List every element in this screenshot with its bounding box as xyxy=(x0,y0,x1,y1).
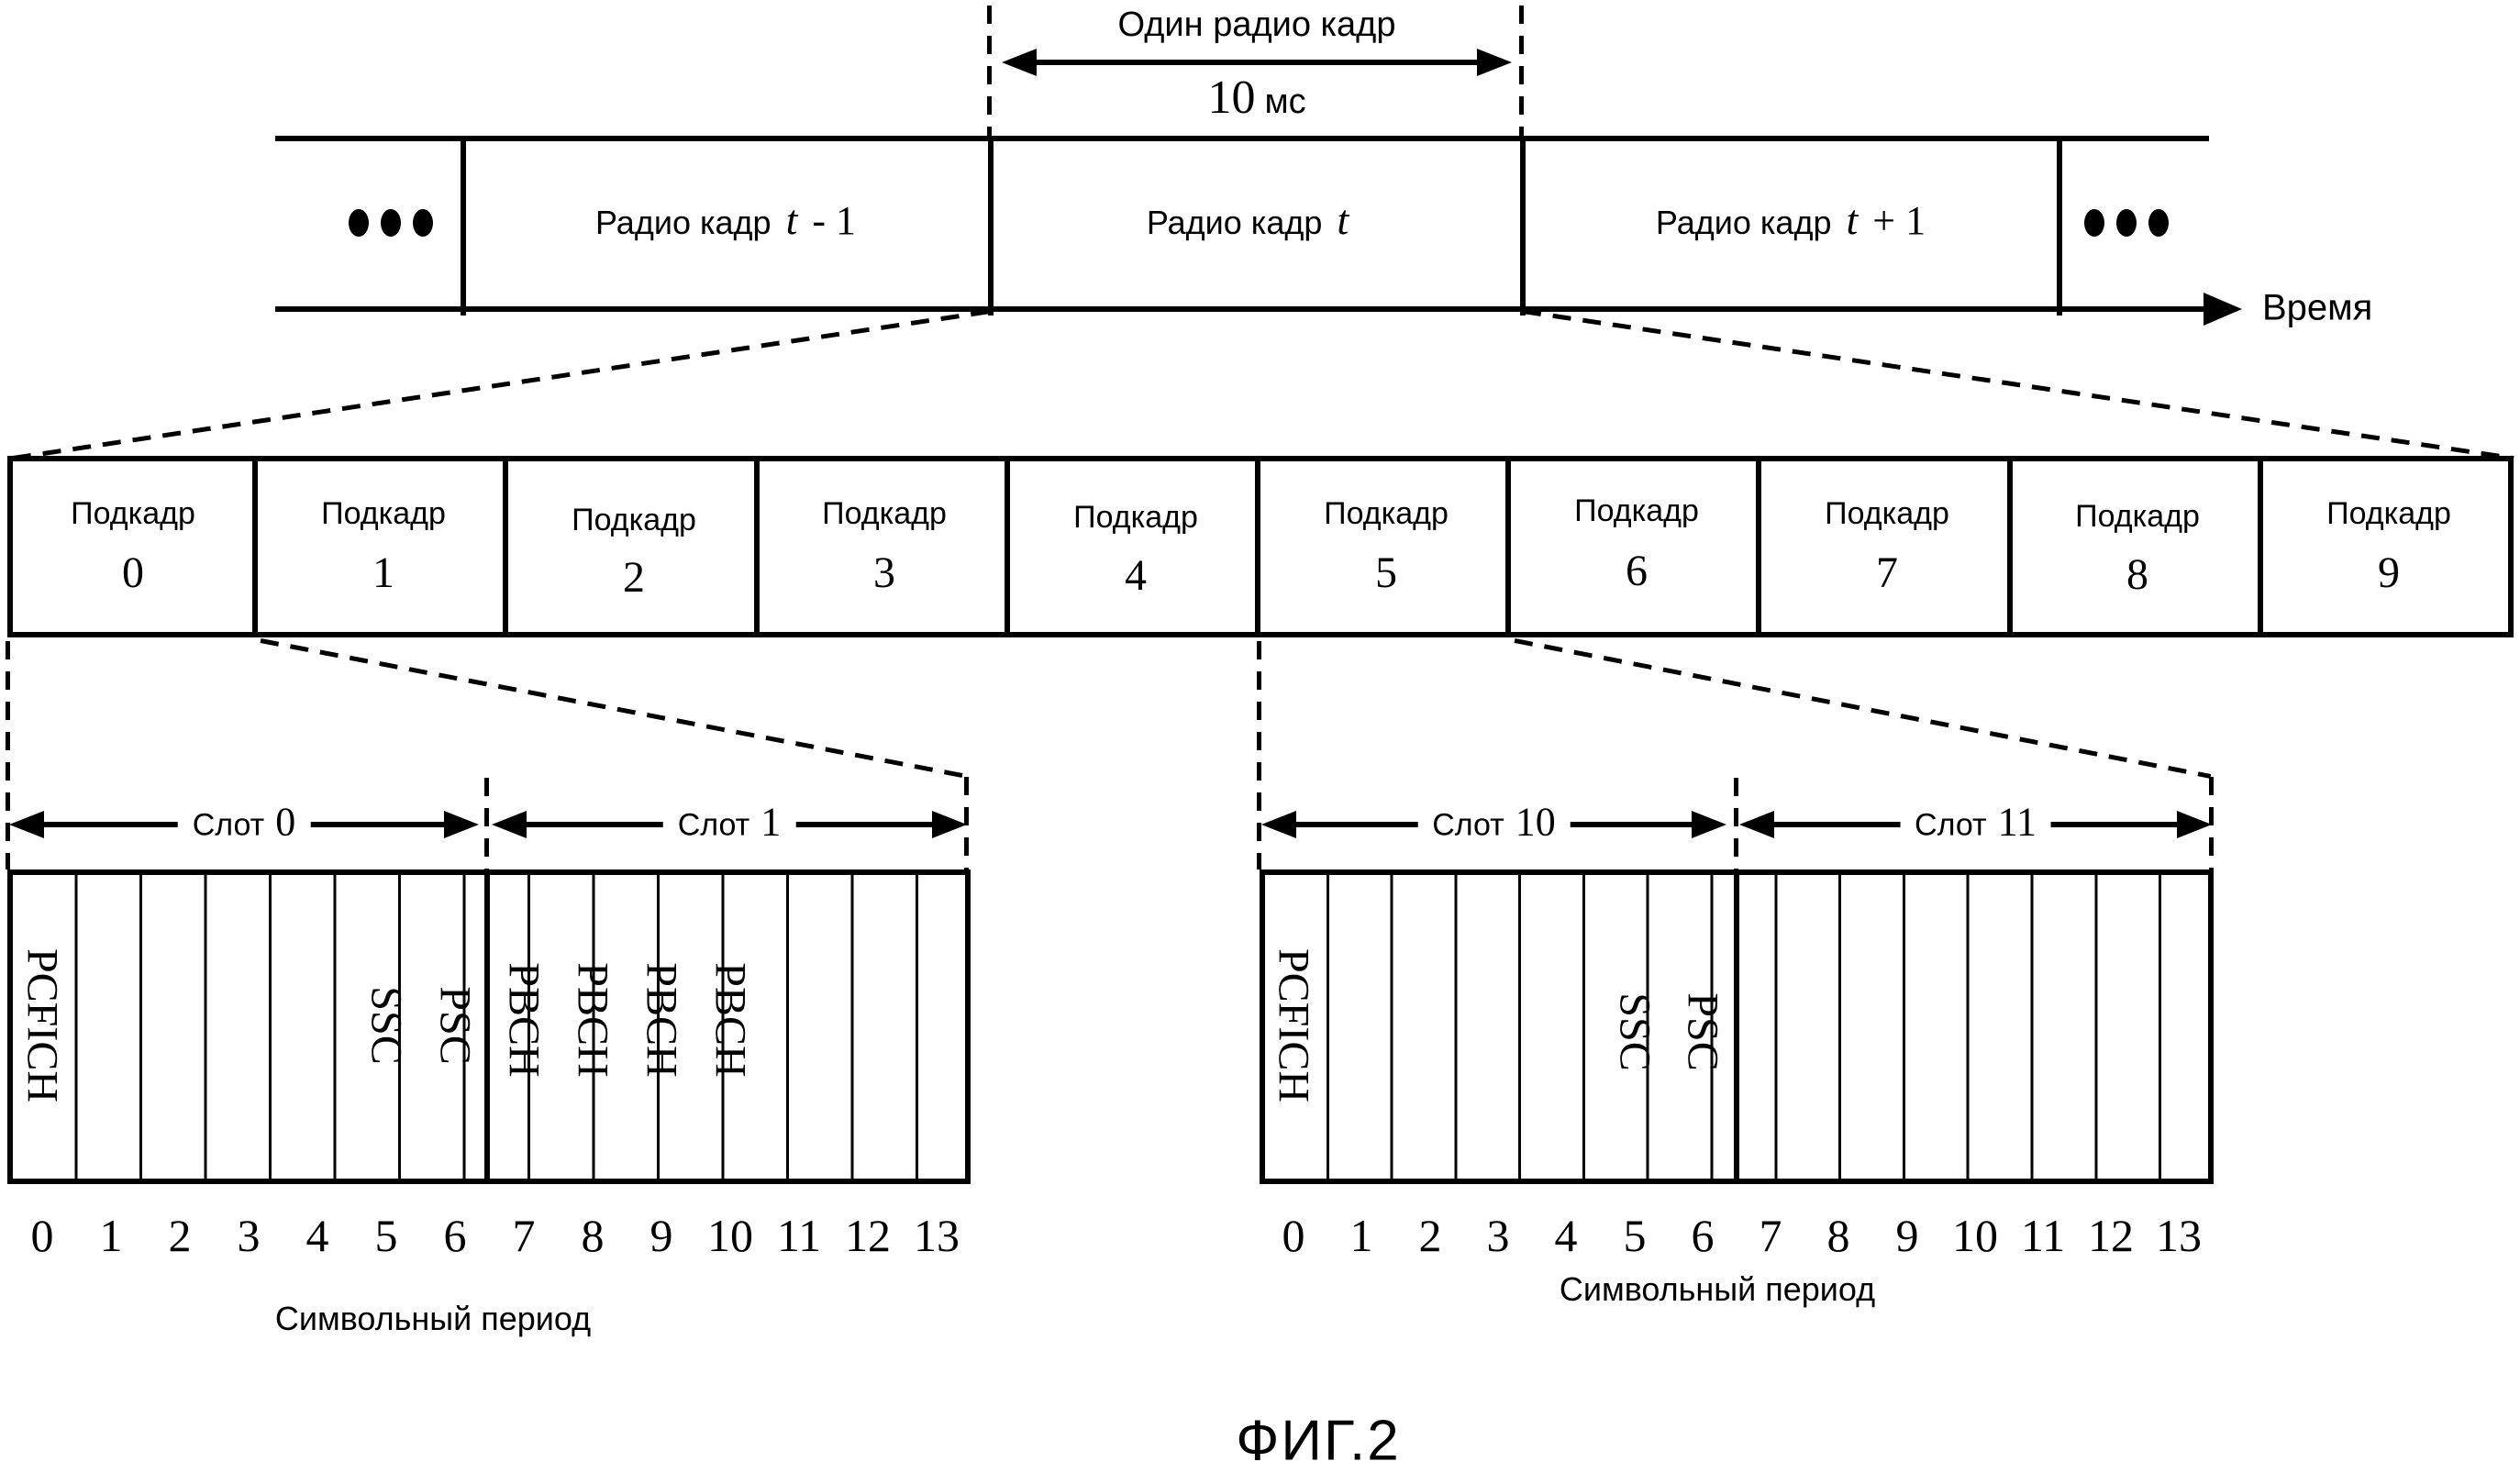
slot-1-label: Слот 1 xyxy=(663,806,796,844)
one-radio-frame-measure-arrow xyxy=(1002,49,1512,76)
channel-label-pbch: PBCH xyxy=(637,962,687,1077)
frame-suffix: + 1 xyxy=(1872,205,1926,237)
channel-label-pbch: PBCH xyxy=(705,962,756,1077)
arrowhead-left-icon xyxy=(492,811,527,838)
subframe-divider xyxy=(1005,456,1010,637)
ellipsis-dots-left xyxy=(349,209,433,237)
channel-label-ssc: SSC xyxy=(1610,992,1660,1070)
symbol-number: 4 xyxy=(1555,1209,1578,1262)
slot-boundary-line-left xyxy=(484,869,490,1184)
frame-suffix: - 1 xyxy=(812,205,856,237)
figure-canvas: Один радио кадр 10 мс Время Радио кадр t… xyxy=(0,0,2520,1473)
subframe-divider xyxy=(754,456,760,637)
slot-1-arrow: Слот 1 xyxy=(492,811,967,838)
slot-word: Слот xyxy=(678,808,750,844)
subframe-divider xyxy=(1505,456,1511,637)
frame-band-bottom-line xyxy=(275,306,2205,312)
slot-0-arrow: Слот 0 xyxy=(9,811,479,838)
symbol-number: 5 xyxy=(1624,1209,1647,1262)
slot-10-arrow: Слот 10 xyxy=(1261,811,1726,838)
subframe-label: Подкадр xyxy=(1825,496,1949,532)
slot-word: Слот xyxy=(1915,808,1987,844)
subframe-divider xyxy=(1255,456,1260,637)
subframe-divider xyxy=(503,456,508,637)
symbol-number: 12 xyxy=(2088,1209,2134,1262)
symbol-number: 1 xyxy=(1350,1209,1373,1262)
symbol-period-caption-right: Символьный период xyxy=(1560,1270,1875,1309)
symbol-number: 6 xyxy=(1692,1209,1715,1262)
frame-divider xyxy=(1520,136,1526,316)
frame-word: Радио кадр xyxy=(1147,204,1323,242)
slot-0-label: Слот 0 xyxy=(178,806,311,844)
frame-word: Радио кадр xyxy=(1656,204,1832,242)
subframe-number: 8 xyxy=(2126,549,2148,600)
symbol-number: 9 xyxy=(650,1209,673,1262)
subframe-number: 1 xyxy=(372,548,394,598)
arrowhead-right-icon xyxy=(1477,49,1512,76)
subframe-label: Подкадр xyxy=(572,503,696,538)
frame-divider xyxy=(461,136,466,316)
symbol-number: 11 xyxy=(2021,1209,2065,1262)
symbol-number: 0 xyxy=(1282,1209,1305,1262)
dot-icon xyxy=(381,209,401,237)
arrowhead-left-icon xyxy=(1002,49,1037,76)
dot-icon xyxy=(2084,209,2104,237)
slot-boundary-dashed-right xyxy=(1734,778,1738,869)
frame-divider xyxy=(988,136,994,316)
symbol-number: 11 xyxy=(777,1209,821,1262)
time-axis-arrowhead-icon xyxy=(2204,293,2242,326)
one-radio-frame-label: Один радио кадр xyxy=(1118,6,1396,45)
symbol-number: 12 xyxy=(845,1209,891,1262)
symbol-number: 9 xyxy=(1896,1209,1919,1262)
expand-connector-subframe0-right xyxy=(261,638,968,779)
arrowhead-right-icon xyxy=(932,811,967,838)
dot-icon xyxy=(2116,209,2137,237)
dot-icon xyxy=(349,209,369,237)
ellipsis-dots-right xyxy=(2084,209,2169,237)
subframe-number: 5 xyxy=(1375,548,1397,598)
channel-label-pcfich: PCFICH xyxy=(17,948,68,1102)
subframe-number: 9 xyxy=(2378,548,2400,598)
slot-11-label: Слот 11 xyxy=(1900,806,2051,844)
subframe-number: 2 xyxy=(623,552,645,603)
subframe-label: Подкадр xyxy=(822,496,947,532)
arrowhead-right-icon xyxy=(1692,811,1726,838)
arrowhead-right-icon xyxy=(444,811,479,838)
frame-divider xyxy=(2057,136,2062,316)
slot-number: 11 xyxy=(1998,806,2037,838)
arrowhead-left-icon xyxy=(9,811,44,838)
subframe-label: Подкадр xyxy=(2326,496,2451,532)
frame-label-t-minus-1: Радио кадр t - 1 xyxy=(595,204,856,242)
subframe-label: Подкадр xyxy=(1574,493,1699,529)
frame-label-t: Радио кадр t xyxy=(1147,204,1363,242)
frame-word: Радио кадр xyxy=(595,204,772,242)
duration-unit: мс xyxy=(1264,83,1305,122)
expand-connector-subframe5-right xyxy=(1515,638,2212,779)
dot-icon xyxy=(413,209,433,237)
slot-word: Слот xyxy=(193,808,265,844)
subframe-label: Подкадр xyxy=(1073,500,1198,536)
expand-connector-band-right xyxy=(1523,309,2514,460)
subframe-divider xyxy=(1756,456,1761,637)
channel-label-psc: PSC xyxy=(430,986,481,1064)
slot-10-label: Слот 10 xyxy=(1417,806,1571,844)
channel-label-psc: PSC xyxy=(1678,992,1728,1070)
subframe-divider xyxy=(252,456,258,637)
symbol-number: 1 xyxy=(100,1209,123,1262)
subframe-label: Подкадр xyxy=(321,496,446,532)
symbol-number: 13 xyxy=(914,1209,960,1262)
slot-boundary-line-right xyxy=(1734,869,1739,1184)
frame-var: t xyxy=(1846,204,1858,238)
symbol-number: 8 xyxy=(1827,1209,1850,1262)
subframe-label: Подкадр xyxy=(1324,496,1449,532)
frame-band-top-line xyxy=(275,136,2209,141)
symbol-number: 5 xyxy=(375,1209,398,1262)
channel-label-pbch: PBCH xyxy=(568,962,618,1077)
symbol-number: 13 xyxy=(2156,1209,2202,1262)
slot-number: 10 xyxy=(1515,806,1556,838)
channel-label-pcfich: PCFICH xyxy=(1269,948,1319,1102)
symbol-number: 0 xyxy=(31,1209,54,1262)
subframe-divider xyxy=(2258,456,2263,637)
slot-boundary-dashed-left xyxy=(484,778,489,869)
symbol-number: 10 xyxy=(1952,1209,1998,1262)
frame-label-t-plus-1: Радио кадр t + 1 xyxy=(1656,204,1926,242)
frame-var: t xyxy=(1337,204,1349,238)
symbol-number: 3 xyxy=(238,1209,261,1262)
slot-word: Слот xyxy=(1432,808,1504,844)
arrowhead-left-icon xyxy=(1739,811,1774,838)
subframe-number: 6 xyxy=(1626,546,1648,596)
arrowhead-left-icon xyxy=(1261,811,1296,838)
arrowhead-right-icon xyxy=(2177,811,2212,838)
frame-boundary-dashed-right xyxy=(1519,6,1524,136)
expand-connector-band-left xyxy=(13,309,992,460)
subframe-label: Подкадр xyxy=(71,496,195,532)
symbol-number: 6 xyxy=(444,1209,467,1262)
symbol-number: 7 xyxy=(513,1209,536,1262)
symbol-period-caption-left: Символьный период xyxy=(275,1300,591,1338)
symbol-number: 2 xyxy=(1419,1209,1442,1262)
duration-value: 10 xyxy=(1207,79,1255,117)
subframe-label: Подкадр xyxy=(2075,499,2200,535)
symbol-number: 8 xyxy=(582,1209,605,1262)
symbol-number: 10 xyxy=(707,1209,753,1262)
time-axis-label: Время xyxy=(2262,288,2372,329)
subframe-number: 7 xyxy=(1876,548,1898,598)
subframe-number: 3 xyxy=(873,548,895,598)
symbol-number: 3 xyxy=(1487,1209,1510,1262)
symbol-number: 7 xyxy=(1760,1209,1782,1262)
frame-duration-label: 10 мс xyxy=(1207,79,1305,122)
slot-number: 0 xyxy=(275,806,295,838)
subframe-number: 4 xyxy=(1125,550,1147,601)
symbol-number: 2 xyxy=(169,1209,192,1262)
subframe-row xyxy=(7,456,2514,637)
subframe-divider xyxy=(2007,456,2013,637)
slot-number: 1 xyxy=(760,806,781,838)
arrow-shaft xyxy=(1037,60,1477,65)
frame-boundary-dashed-left xyxy=(987,6,992,136)
frame-var: t xyxy=(786,204,798,238)
figure-caption: ФИГ.2 xyxy=(1236,1409,1400,1473)
dot-icon xyxy=(2148,209,2169,237)
channel-label-ssc: SSC xyxy=(361,986,412,1064)
channel-label-pbch: PBCH xyxy=(499,962,550,1077)
symbol-number: 4 xyxy=(306,1209,329,1262)
slot-11-arrow: Слот 11 xyxy=(1739,811,2212,838)
subframe-number: 0 xyxy=(122,548,144,598)
